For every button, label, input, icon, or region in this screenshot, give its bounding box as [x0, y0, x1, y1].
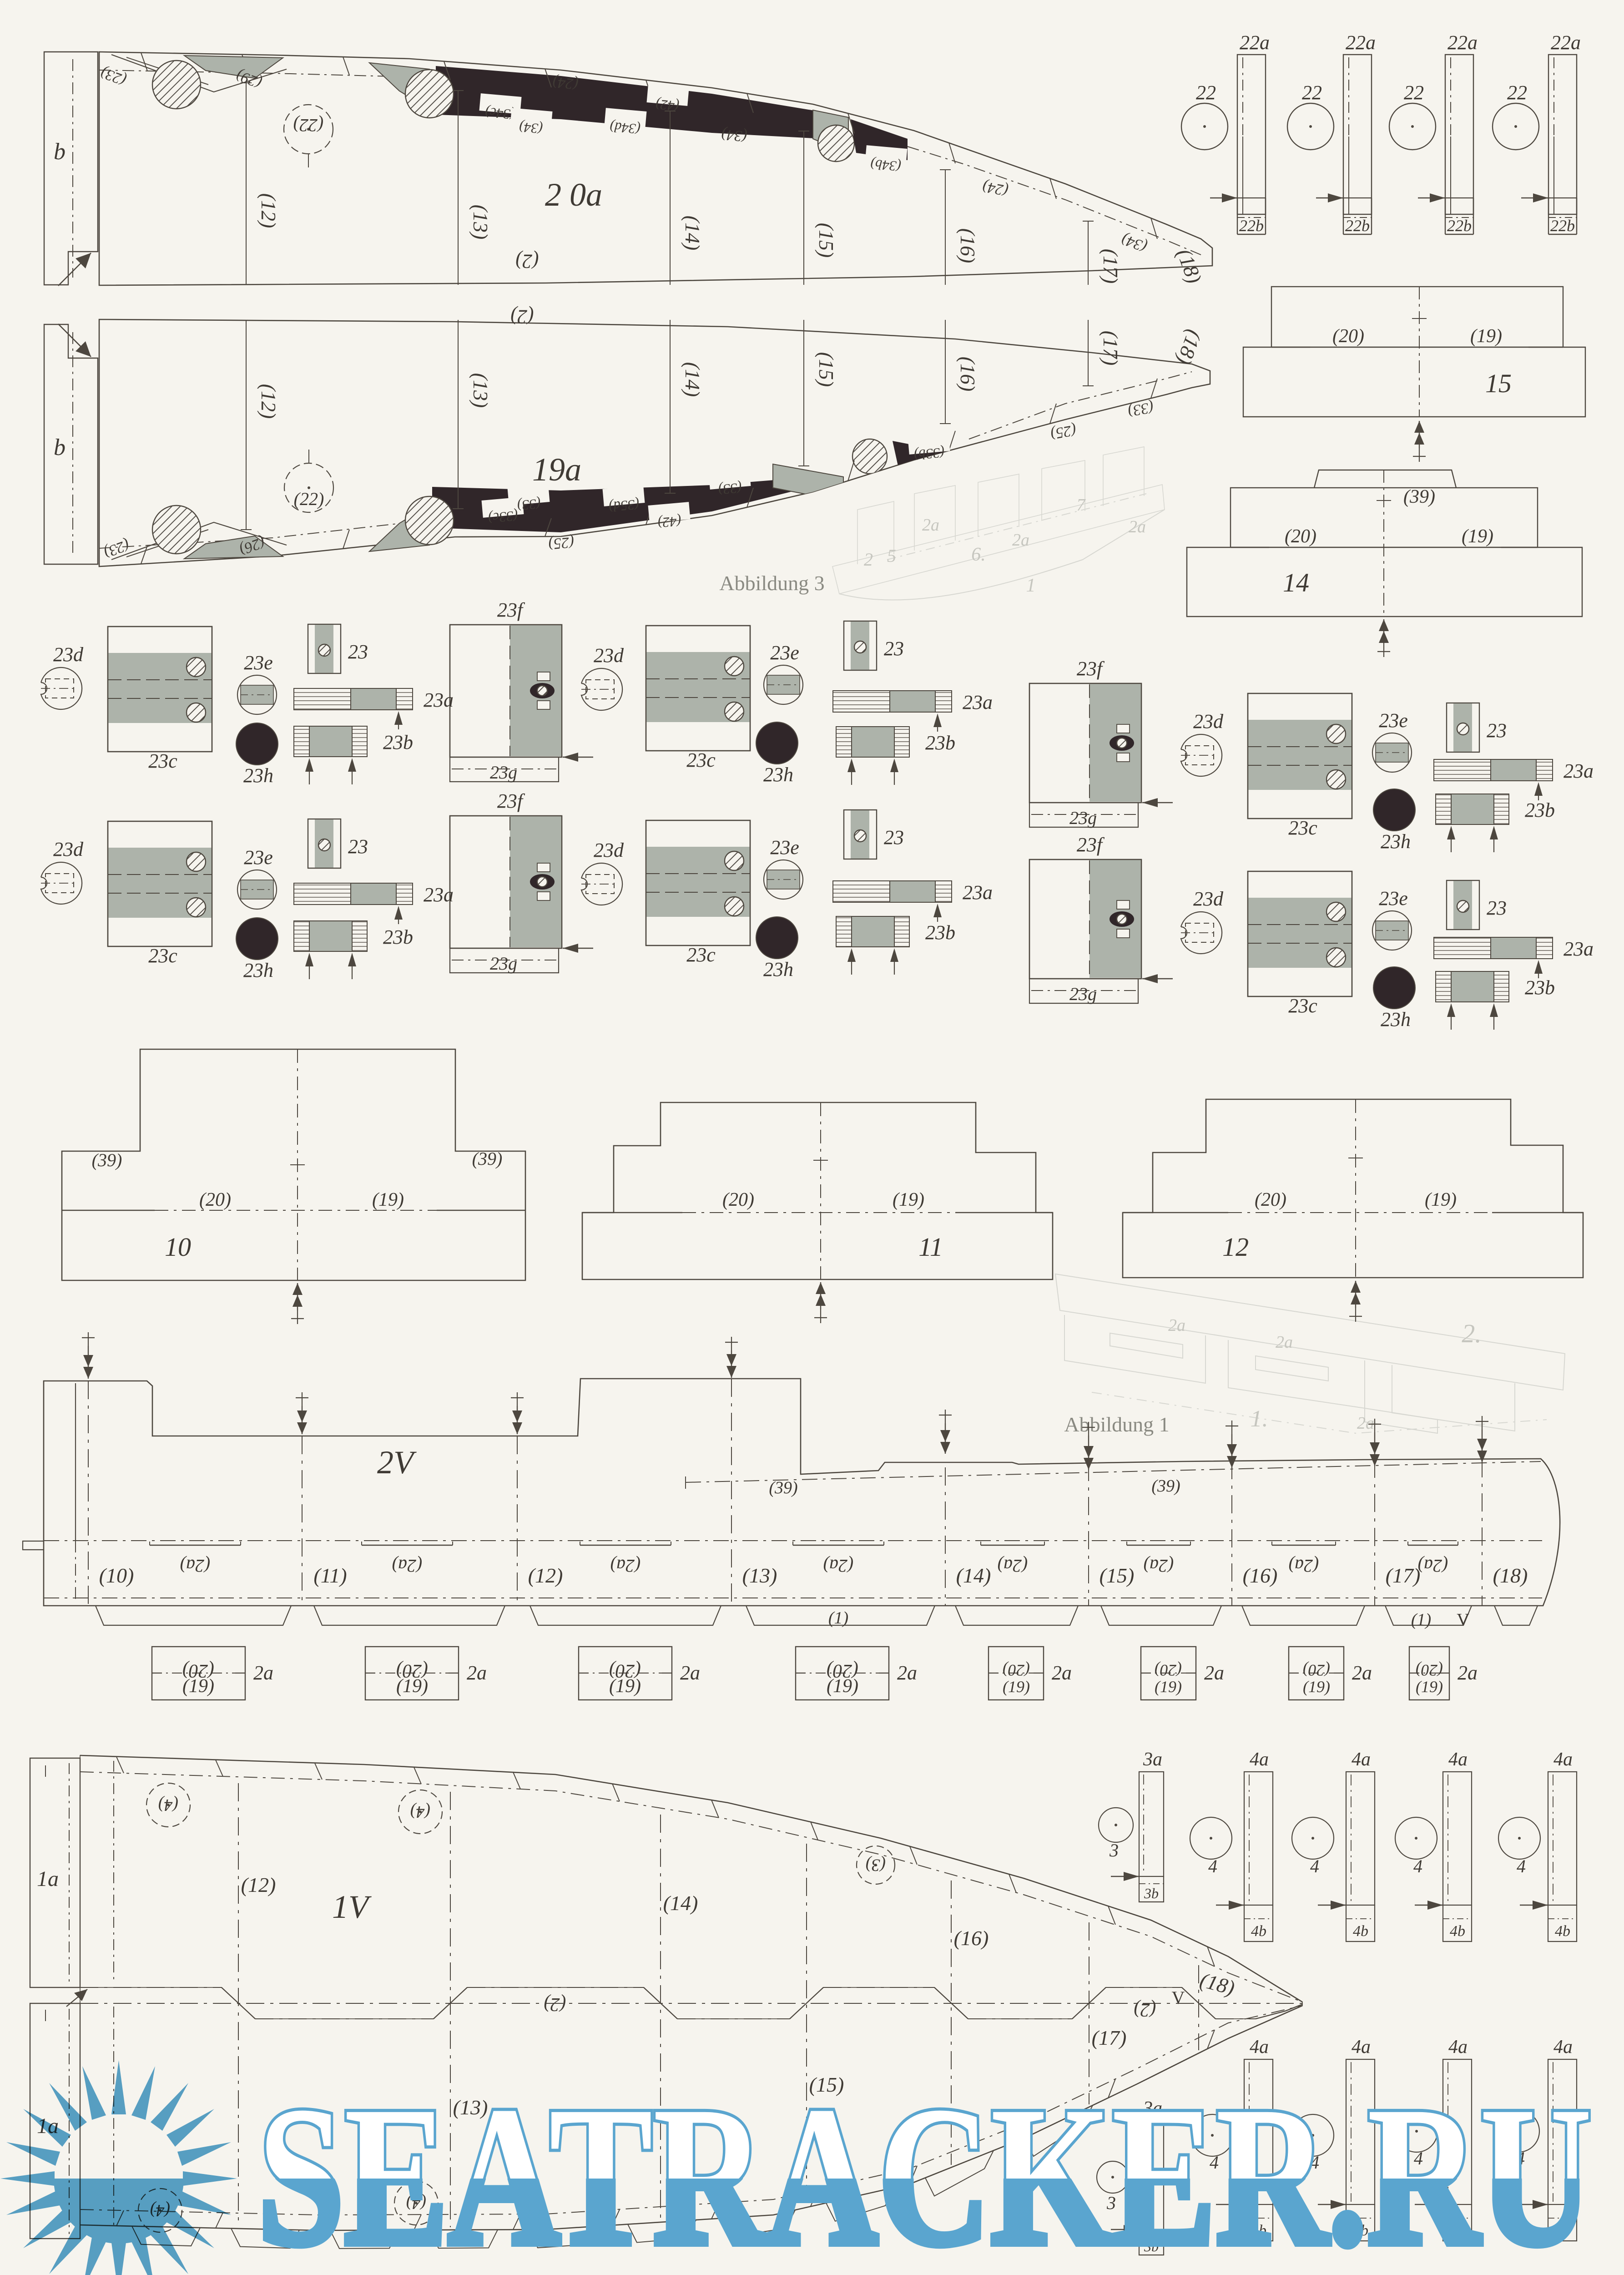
svg-text:23h: 23h: [243, 764, 273, 787]
svg-text:(42): (42): [657, 513, 682, 531]
svg-text:(19): (19): [396, 1676, 428, 1697]
svg-text:(20): (20): [199, 1189, 231, 1210]
svg-text:(12): (12): [241, 1873, 276, 1896]
svg-text:3: 3: [1109, 1840, 1119, 1860]
svg-text:(19): (19): [1462, 526, 1493, 547]
svg-text:5: 5: [887, 546, 896, 566]
svg-text:(3): (3): [866, 1855, 886, 1875]
svg-text:(16): (16): [956, 357, 979, 392]
svg-text:22a: 22a: [1551, 31, 1581, 54]
svg-text:23: 23: [348, 641, 368, 663]
svg-text:23h: 23h: [243, 959, 273, 981]
svg-text:23e: 23e: [244, 652, 273, 674]
svg-text:22: 22: [1507, 81, 1527, 104]
svg-text:23d: 23d: [53, 838, 84, 860]
svg-text:6.: 6.: [971, 544, 986, 565]
svg-text:2a: 2a: [1276, 1333, 1293, 1352]
svg-text:(19): (19): [1303, 1678, 1330, 1696]
svg-text:23g: 23g: [490, 953, 517, 974]
svg-text:(19): (19): [1470, 326, 1502, 347]
svg-text:23: 23: [1487, 719, 1507, 742]
svg-text:(19): (19): [827, 1676, 858, 1697]
svg-text:(19): (19): [609, 1676, 641, 1697]
svg-text:22a: 22a: [1346, 31, 1376, 54]
svg-text:4b: 4b: [1555, 1923, 1570, 1940]
svg-text:23b: 23b: [383, 731, 413, 753]
svg-text:4a: 4a: [1553, 1749, 1573, 1770]
svg-text:2a: 2a: [680, 1662, 700, 1684]
svg-text:1: 1: [1026, 575, 1036, 596]
svg-text:2a: 2a: [1357, 1414, 1374, 1433]
svg-text:V: V: [1457, 1610, 1469, 1629]
svg-text:4a: 4a: [1352, 2037, 1371, 2058]
svg-text:(15): (15): [1099, 1564, 1135, 1587]
svg-text:23h: 23h: [1381, 1008, 1411, 1031]
svg-text:2a: 2a: [1129, 517, 1146, 536]
svg-text:22b: 22b: [1345, 217, 1370, 235]
svg-text:b: b: [54, 435, 66, 460]
svg-text:(13): (13): [742, 1564, 777, 1587]
svg-text:4: 4: [1310, 1856, 1319, 1876]
svg-text:1.: 1.: [1251, 1406, 1268, 1432]
svg-text:2a: 2a: [1352, 1662, 1372, 1684]
svg-text:23d: 23d: [53, 643, 84, 666]
svg-text:4: 4: [1208, 1856, 1217, 1876]
svg-text:(13): (13): [469, 205, 492, 240]
svg-text:23b: 23b: [925, 921, 955, 944]
svg-text:3a: 3a: [1143, 1749, 1162, 1770]
svg-text:23c: 23c: [686, 749, 716, 771]
svg-text:23e: 23e: [1379, 887, 1408, 910]
svg-text:(20): (20): [1332, 326, 1364, 347]
svg-text:(20): (20): [1285, 526, 1316, 547]
svg-text:(19): (19): [893, 1189, 924, 1210]
svg-text:23d: 23d: [594, 644, 624, 667]
svg-text:2a: 2a: [467, 1662, 487, 1684]
svg-text:(14): (14): [681, 216, 704, 251]
svg-text:7: 7: [1077, 495, 1086, 515]
svg-text:2a: 2a: [253, 1662, 273, 1684]
svg-text:(18): (18): [1493, 1564, 1528, 1587]
svg-text:22b: 22b: [1239, 217, 1264, 235]
svg-text:(4): (4): [158, 1795, 178, 1815]
svg-text:(33c): (33c): [488, 508, 519, 526]
svg-text:23a: 23a: [424, 884, 454, 906]
svg-text:22a: 22a: [1447, 31, 1478, 54]
svg-text:4a: 4a: [1352, 1749, 1371, 1770]
svg-text:22: 22: [1404, 81, 1424, 104]
svg-text:23h: 23h: [1381, 830, 1411, 853]
svg-text:23f: 23f: [497, 790, 525, 812]
svg-text:23c: 23c: [1288, 817, 1317, 839]
svg-text:(19): (19): [1416, 1678, 1443, 1696]
svg-text:(2): (2): [515, 250, 539, 273]
svg-text:22a: 22a: [1240, 31, 1270, 54]
svg-text:22: 22: [1196, 81, 1216, 104]
svg-text:(34d): (34d): [609, 119, 641, 137]
svg-text:(15): (15): [815, 352, 838, 387]
svg-text:2a: 2a: [897, 1662, 917, 1684]
svg-text:V: V: [1172, 1987, 1185, 2008]
svg-text:23e: 23e: [770, 836, 799, 859]
svg-text:(19): (19): [1155, 1678, 1182, 1696]
svg-text:23g: 23g: [490, 762, 517, 783]
svg-text:4: 4: [1413, 1856, 1422, 1876]
svg-text:(20): (20): [1003, 1661, 1030, 1679]
svg-text:(1): (1): [828, 1608, 848, 1628]
svg-text:10: 10: [165, 1232, 191, 1262]
svg-text:4: 4: [1517, 1856, 1526, 1876]
svg-text:(2): (2): [510, 306, 534, 328]
svg-text:2a: 2a: [1052, 1662, 1072, 1684]
svg-text:(25): (25): [548, 534, 575, 553]
svg-text:23b: 23b: [383, 926, 413, 948]
svg-text:1a: 1a: [37, 1867, 59, 1891]
svg-text:(19): (19): [372, 1189, 404, 1210]
svg-text:23d: 23d: [1193, 710, 1224, 733]
svg-text:(2a): (2a): [392, 1556, 423, 1576]
svg-text:(20): (20): [1255, 1189, 1286, 1210]
svg-text:(33b): (33b): [913, 445, 945, 463]
svg-text:(33): (33): [718, 480, 743, 498]
svg-text:23f: 23f: [1077, 657, 1105, 680]
svg-text:14: 14: [1283, 568, 1309, 597]
svg-text:(2a): (2a): [998, 1556, 1028, 1576]
svg-text:(42): (42): [655, 96, 680, 114]
svg-text:(14): (14): [956, 1564, 991, 1587]
svg-text:(34b): (34b): [870, 156, 902, 175]
svg-text:23f: 23f: [1077, 834, 1105, 856]
svg-text:(11): (11): [313, 1564, 347, 1587]
svg-text:22: 22: [1302, 81, 1322, 104]
svg-text:3b: 3b: [1144, 1885, 1159, 1901]
svg-text:Abbildung 1: Abbildung 1: [1064, 1413, 1169, 1436]
svg-text:2 0a: 2 0a: [545, 177, 602, 213]
svg-text:(34): (34): [519, 119, 544, 137]
svg-text:23a: 23a: [1563, 938, 1594, 960]
svg-text:(19): (19): [182, 1676, 214, 1697]
svg-text:23e: 23e: [770, 642, 799, 664]
svg-text:23e: 23e: [244, 846, 273, 869]
svg-text:(2): (2): [1134, 1999, 1156, 2020]
svg-text:(16): (16): [954, 1926, 989, 1950]
svg-text:23g: 23g: [1069, 808, 1097, 828]
svg-text:23f: 23f: [497, 599, 525, 621]
svg-text:23d: 23d: [594, 839, 624, 861]
svg-text:23: 23: [884, 637, 904, 660]
svg-text:(20): (20): [1155, 1661, 1182, 1679]
svg-text:23a: 23a: [1563, 760, 1594, 782]
svg-text:23b: 23b: [925, 732, 955, 754]
svg-text:1V: 1V: [332, 1889, 372, 1925]
svg-text:15: 15: [1485, 369, 1512, 398]
svg-text:23: 23: [884, 826, 904, 849]
svg-text:23c: 23c: [148, 945, 177, 967]
svg-text:(2): (2): [544, 1994, 566, 2015]
svg-text:Abbildung 3: Abbildung 3: [719, 571, 824, 595]
svg-text:4a: 4a: [1448, 1749, 1468, 1770]
svg-text:(34): (34): [721, 126, 748, 145]
svg-text:(12): (12): [257, 193, 280, 228]
svg-text:b: b: [54, 139, 66, 165]
svg-text:(19): (19): [1003, 1678, 1030, 1696]
svg-text:23c: 23c: [148, 750, 177, 772]
svg-text:(16): (16): [1243, 1564, 1278, 1587]
svg-text:4b: 4b: [1450, 1923, 1465, 1940]
svg-text:(2a): (2a): [1418, 1556, 1448, 1576]
svg-text:23h: 23h: [763, 763, 793, 786]
svg-text:23e: 23e: [1379, 709, 1408, 732]
svg-text:2a: 2a: [1204, 1662, 1224, 1684]
svg-text:(2a): (2a): [823, 1556, 854, 1576]
svg-text:(14): (14): [663, 1891, 698, 1915]
svg-text:(10): (10): [99, 1564, 134, 1587]
svg-text:(39): (39): [1151, 1476, 1180, 1496]
svg-text:(1): (1): [1411, 1610, 1431, 1629]
svg-text:(20): (20): [722, 1189, 754, 1210]
svg-text:12: 12: [1222, 1232, 1249, 1262]
svg-text:(39): (39): [92, 1150, 122, 1170]
svg-text:(4): (4): [410, 1802, 430, 1821]
svg-text:23a: 23a: [424, 689, 454, 711]
svg-text:(17): (17): [1099, 331, 1122, 366]
svg-text:(15): (15): [815, 223, 838, 258]
svg-text:4a: 4a: [1553, 2037, 1573, 2058]
svg-text:4a: 4a: [1250, 2037, 1269, 2058]
svg-text:(16): (16): [956, 228, 979, 263]
svg-text:23c: 23c: [686, 944, 716, 966]
svg-text:4b: 4b: [1353, 1923, 1368, 1940]
svg-text:(17): (17): [1386, 1564, 1421, 1587]
svg-text:(39): (39): [472, 1148, 503, 1169]
svg-text:(2a): (2a): [610, 1556, 641, 1576]
svg-text:2a: 2a: [1458, 1662, 1478, 1684]
svg-text:19a: 19a: [532, 451, 581, 488]
svg-text:(12): (12): [257, 384, 280, 419]
svg-text:(35d): (35d): [608, 496, 640, 515]
svg-text:2a: 2a: [1012, 531, 1029, 550]
svg-text:23a: 23a: [963, 881, 993, 904]
svg-text:(20): (20): [1416, 1661, 1443, 1679]
svg-text:23h: 23h: [763, 958, 793, 981]
svg-text:2V: 2V: [377, 1444, 417, 1481]
svg-text:4b: 4b: [1251, 1923, 1266, 1940]
svg-text:2: 2: [864, 549, 873, 570]
svg-text:22b: 22b: [1550, 217, 1575, 235]
svg-text:2.: 2.: [1462, 1319, 1482, 1348]
svg-text:(13): (13): [469, 373, 492, 408]
svg-text:2a: 2a: [922, 516, 939, 535]
svg-text:4a: 4a: [1250, 1749, 1269, 1770]
svg-text:23: 23: [1487, 897, 1507, 919]
svg-text:(14): (14): [681, 362, 704, 397]
svg-text:(2a): (2a): [1289, 1556, 1319, 1576]
svg-text:23g: 23g: [1069, 984, 1097, 1004]
svg-text:(19): (19): [1425, 1189, 1457, 1210]
svg-text:(2a): (2a): [1144, 1556, 1174, 1576]
svg-text:(33): (33): [517, 496, 542, 514]
svg-text:(24): (24): [552, 74, 579, 93]
svg-text:23d: 23d: [1193, 888, 1224, 910]
svg-text:(20): (20): [1303, 1661, 1330, 1679]
svg-text:(12): (12): [528, 1564, 563, 1587]
svg-text:23: 23: [348, 835, 368, 858]
svg-text:(2a): (2a): [180, 1556, 211, 1576]
svg-text:23c: 23c: [1288, 995, 1317, 1017]
svg-text:22b: 22b: [1447, 217, 1472, 235]
svg-text:(39): (39): [1403, 486, 1435, 507]
svg-text:(22): (22): [293, 115, 324, 136]
svg-text:(17): (17): [1099, 249, 1122, 284]
svg-text:4a: 4a: [1448, 2037, 1468, 2058]
svg-text:(17): (17): [1092, 2026, 1127, 2049]
svg-text:(22): (22): [294, 489, 324, 509]
svg-text:11: 11: [918, 1232, 943, 1262]
svg-text:23a: 23a: [963, 691, 993, 713]
svg-text:2a: 2a: [1168, 1316, 1185, 1335]
svg-text:(39): (39): [769, 1478, 797, 1497]
svg-text:23b: 23b: [1525, 799, 1555, 821]
svg-text:23b: 23b: [1525, 976, 1555, 999]
